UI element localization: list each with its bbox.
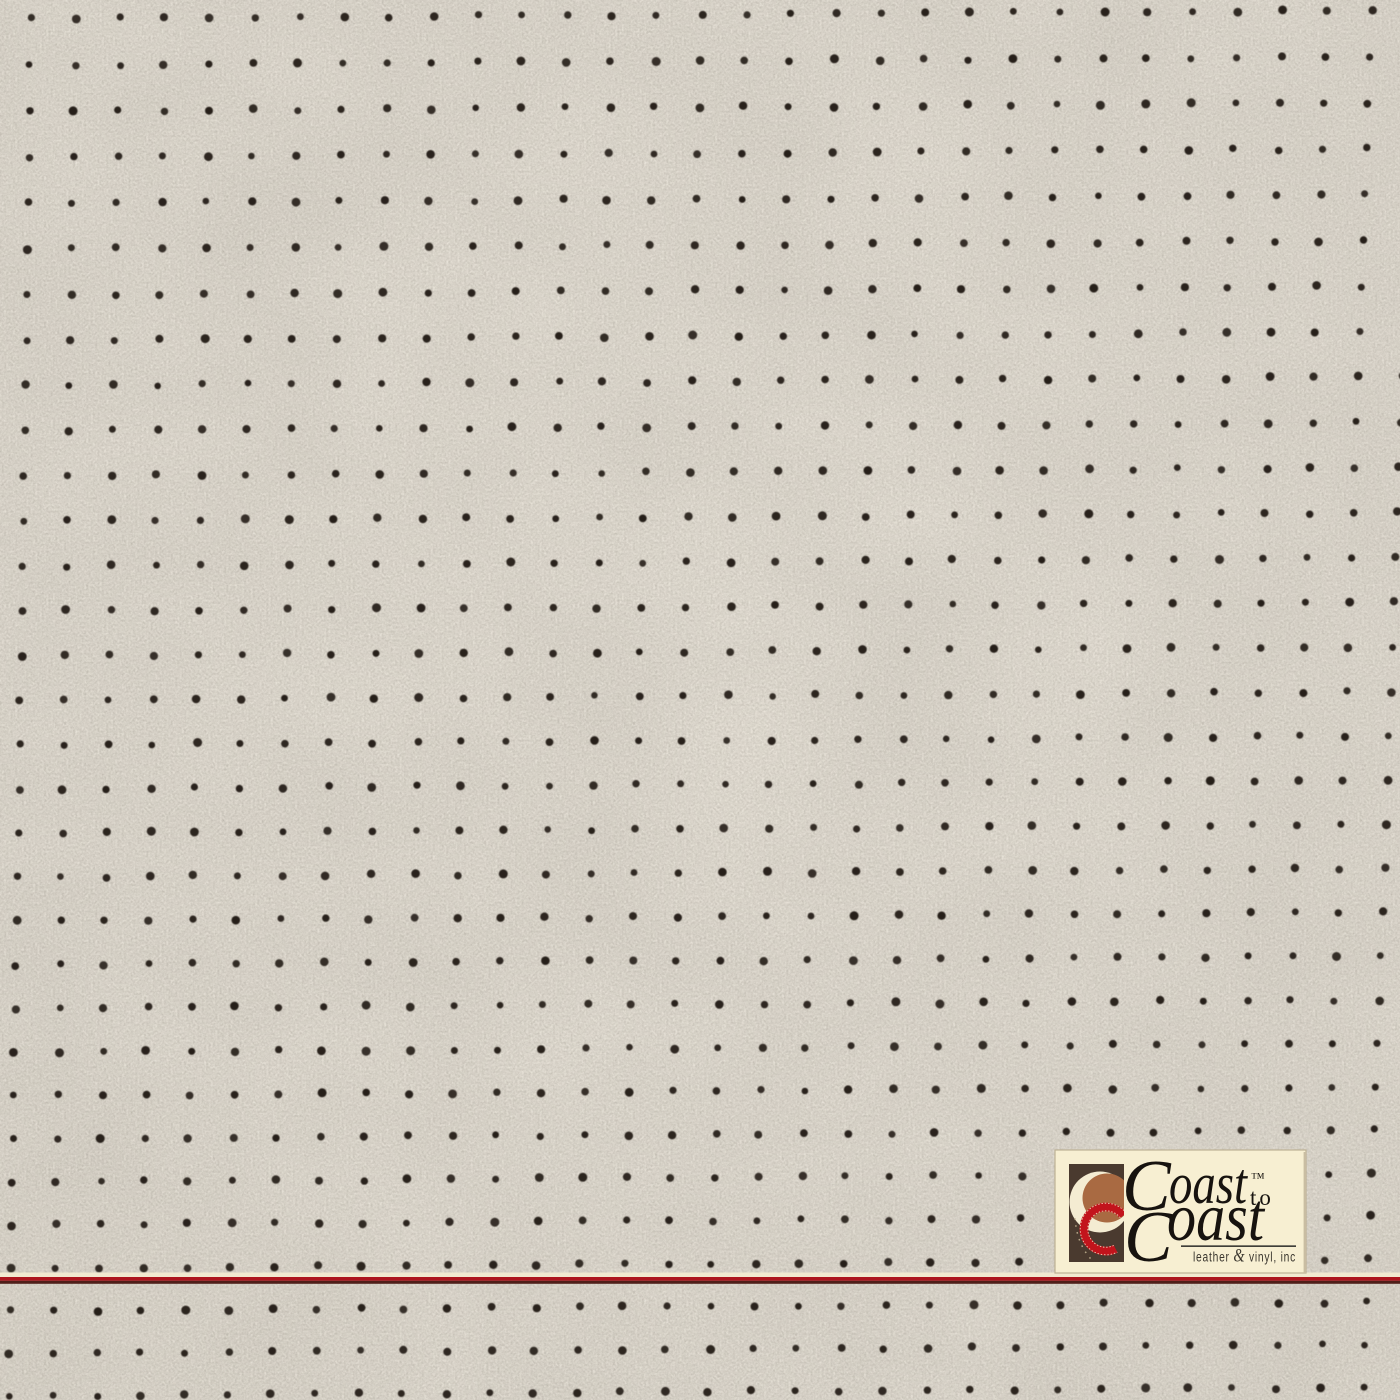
- svg-text:oast: oast: [1167, 1179, 1266, 1255]
- svg-text:leather & vinyl, inc: leather & vinyl, inc: [1193, 1246, 1296, 1267]
